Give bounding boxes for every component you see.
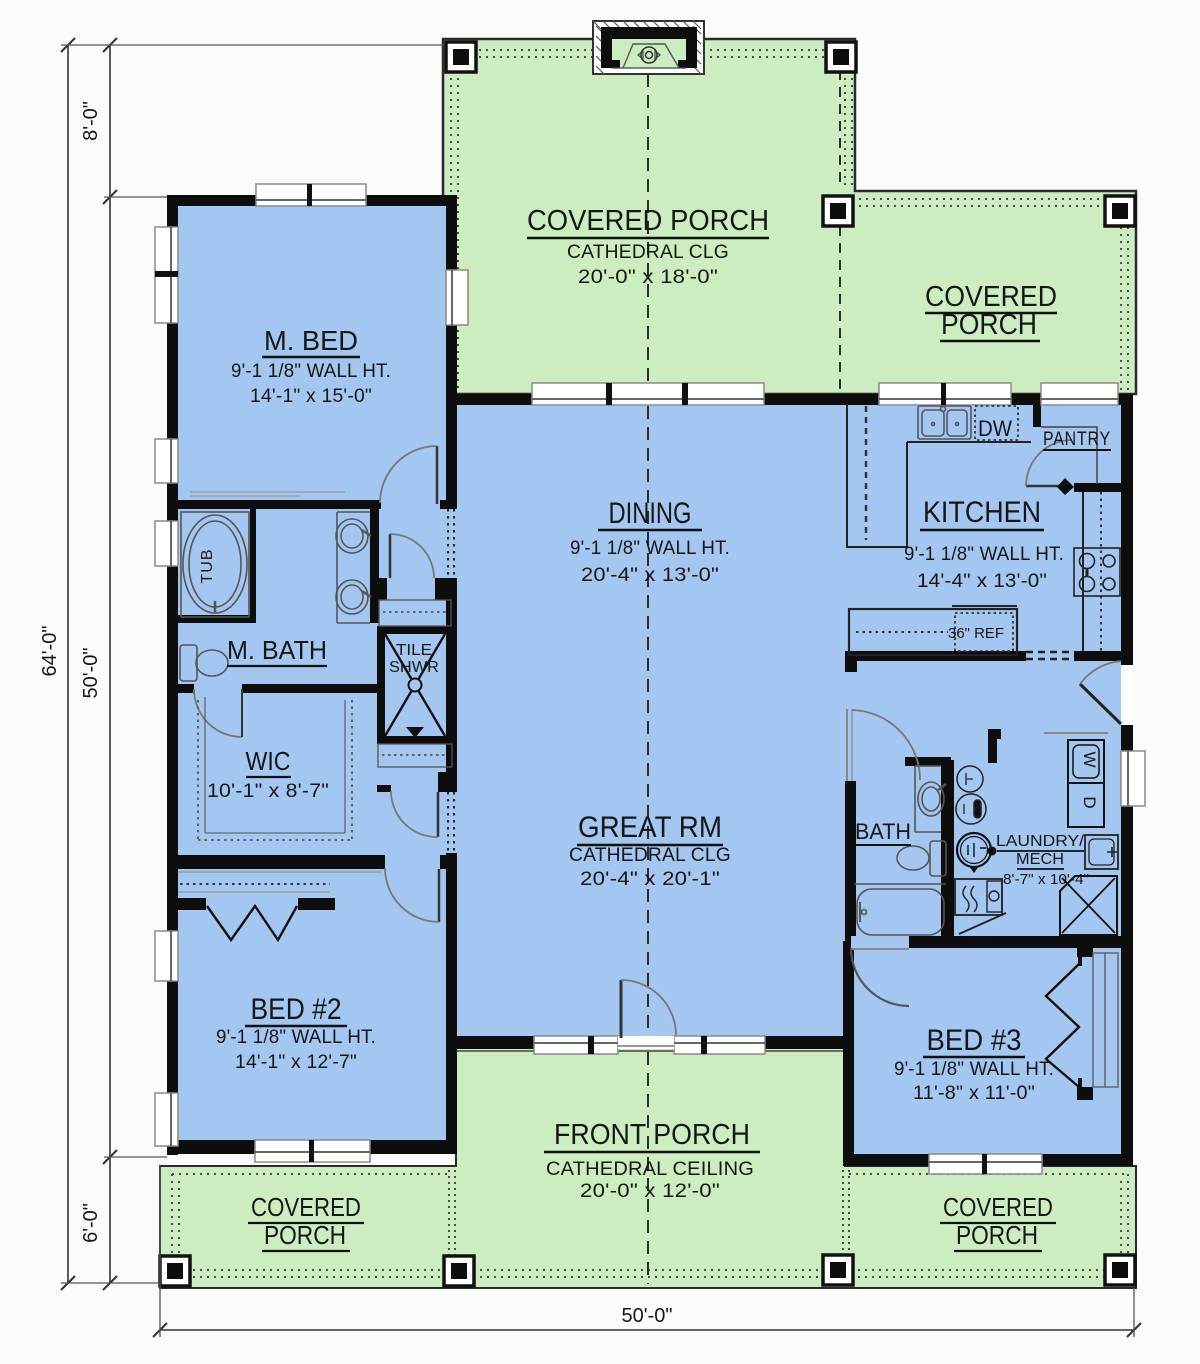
svg-text:14'-1" x 12'-7": 14'-1" x 12'-7" xyxy=(235,1052,357,1073)
svg-text:MECH: MECH xyxy=(1016,851,1064,868)
svg-text:9'-1 1/8" WALL HT.: 9'-1 1/8" WALL HT. xyxy=(904,544,1064,565)
svg-text:DINING: DINING xyxy=(609,497,692,530)
svg-text:9'-1 1/8" WALL HT.: 9'-1 1/8" WALL HT. xyxy=(570,538,730,559)
svg-text:20'-4" x 13'-0": 20'-4" x 13'-0" xyxy=(581,565,719,586)
svg-text:8'-7" x 10'-4": 8'-7" x 10'-4" xyxy=(1003,871,1089,888)
svg-text:20'-0" x 12'-0": 20'-0" x 12'-0" xyxy=(580,1181,720,1202)
svg-text:8'-0": 8'-0" xyxy=(80,101,102,141)
svg-text:BED #2: BED #2 xyxy=(251,993,342,1026)
svg-text:CATHEDRAL CEILING: CATHEDRAL CEILING xyxy=(546,1159,754,1180)
svg-text:14'-1" x 15'-0": 14'-1" x 15'-0" xyxy=(250,386,372,407)
svg-text:64'-0": 64'-0" xyxy=(39,626,61,677)
svg-text:9'-1 1/8" WALL HT.: 9'-1 1/8" WALL HT. xyxy=(231,361,391,382)
svg-text:10'-1" x 8'-7": 10'-1" x 8'-7" xyxy=(207,781,329,802)
svg-text:CATHEDRAL CLG: CATHEDRAL CLG xyxy=(569,845,731,866)
svg-text:BED #3: BED #3 xyxy=(927,1024,1022,1057)
svg-text:PORCH: PORCH xyxy=(941,309,1037,341)
svg-text:FRONT PORCH: FRONT PORCH xyxy=(554,1119,750,1151)
svg-text:KITCHEN: KITCHEN xyxy=(923,496,1041,529)
svg-text:SHWR: SHWR xyxy=(389,659,439,676)
svg-text:GREAT RM: GREAT RM xyxy=(578,811,722,844)
svg-text:TILE: TILE xyxy=(396,642,432,659)
svg-text:D: D xyxy=(1080,796,1099,809)
svg-text:COVERED: COVERED xyxy=(943,1192,1053,1222)
svg-text:DW: DW xyxy=(978,416,1012,441)
svg-text:COVERED: COVERED xyxy=(251,1192,361,1222)
svg-text:9'-1 1/8" WALL HT.: 9'-1 1/8" WALL HT. xyxy=(894,1059,1054,1080)
svg-text:M. BATH: M. BATH xyxy=(227,635,327,665)
svg-text:PORCH: PORCH xyxy=(264,1220,346,1250)
svg-text:50'-0": 50'-0" xyxy=(80,648,102,699)
svg-text:14'-4" x 13'-0": 14'-4" x 13'-0" xyxy=(917,571,1047,592)
svg-text:11'-8" x 11'-0": 11'-8" x 11'-0" xyxy=(913,1083,1035,1104)
svg-text:BATH: BATH xyxy=(855,819,911,844)
svg-text:CATHEDRAL CLG: CATHEDRAL CLG xyxy=(567,242,729,263)
svg-text:LAUNDRY/: LAUNDRY/ xyxy=(996,833,1085,850)
svg-text:20'-4" x 20'-1": 20'-4" x 20'-1" xyxy=(580,869,720,890)
svg-text:20'-0" x 18'-0": 20'-0" x 18'-0" xyxy=(578,267,718,288)
svg-text:COVERED PORCH: COVERED PORCH xyxy=(527,205,769,237)
svg-text:TUB: TUB xyxy=(199,549,216,584)
svg-text:PANTRY: PANTRY xyxy=(1043,429,1111,450)
svg-text:PORCH: PORCH xyxy=(956,1220,1038,1250)
svg-text:M. BED: M. BED xyxy=(264,325,358,356)
svg-text:9'-1 1/8" WALL HT.: 9'-1 1/8" WALL HT. xyxy=(216,1027,376,1048)
svg-text:36" REF: 36" REF xyxy=(948,625,1004,642)
svg-text:WIC: WIC xyxy=(246,746,291,776)
svg-text:6'-0": 6'-0" xyxy=(80,1203,102,1243)
svg-text:50'-0": 50'-0" xyxy=(622,1305,673,1327)
svg-text:W: W xyxy=(1080,751,1099,768)
